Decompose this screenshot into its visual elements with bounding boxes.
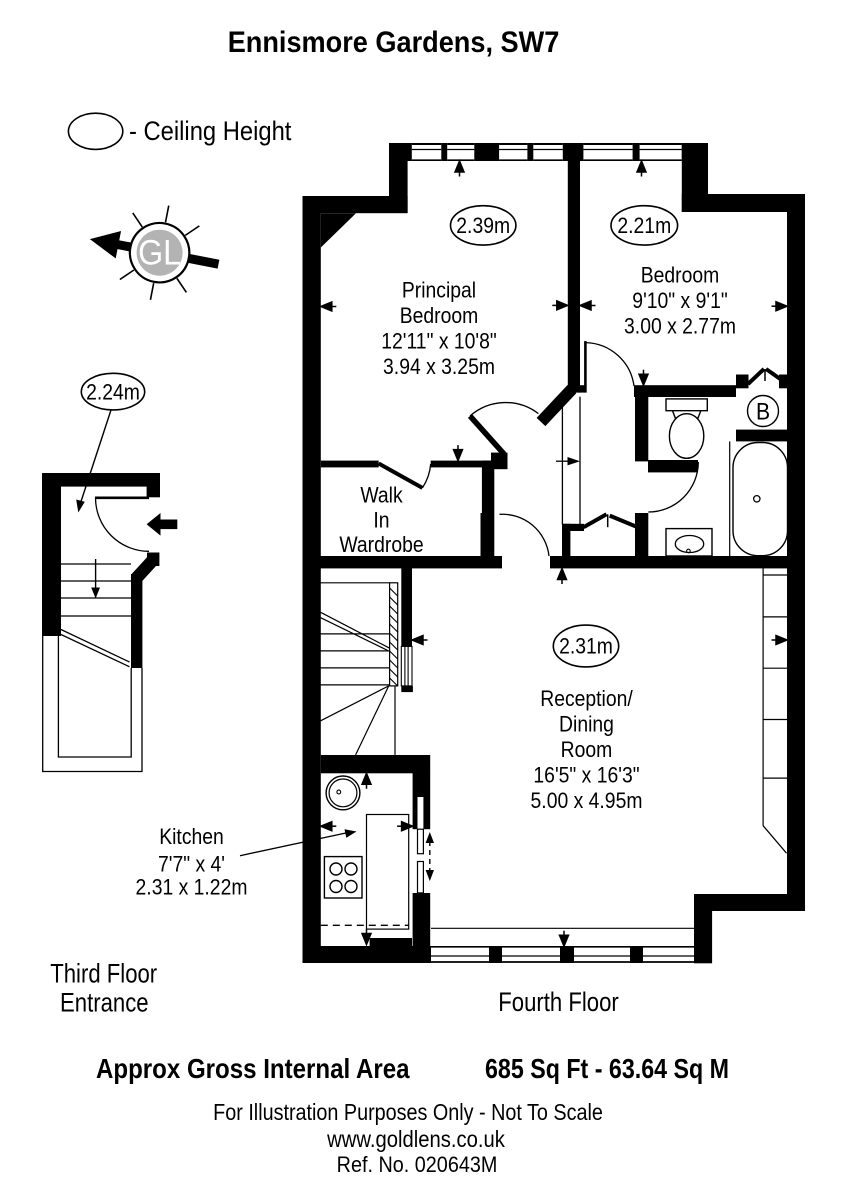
svg-text:Fourth Floor: Fourth Floor: [498, 988, 618, 1018]
svg-text:B: B: [756, 398, 770, 425]
svg-text:Third Floor: Third Floor: [50, 960, 157, 990]
svg-text:2.31 x 1.22m: 2.31 x 1.22m: [136, 875, 248, 899]
svg-text:www.goldlens.co.uk: www.goldlens.co.uk: [326, 1126, 505, 1153]
svg-text:9'10" x 9'1": 9'10" x 9'1": [632, 289, 727, 313]
svg-text:12'11" x 10'8": 12'11" x 10'8": [381, 329, 496, 353]
svg-text:Room: Room: [561, 738, 613, 762]
svg-text:Dining: Dining: [559, 712, 614, 736]
svg-text:5.00 x 4.95m: 5.00 x 4.95m: [531, 789, 643, 813]
svg-text:2.24m: 2.24m: [86, 380, 140, 404]
svg-text:For Illustration Purposes Only: For Illustration Purposes Only - Not To …: [213, 1100, 603, 1126]
svg-text:GL: GL: [138, 235, 181, 274]
svg-text:3.94 x 3.25m: 3.94 x 3.25m: [383, 355, 495, 379]
svg-text:Entrance: Entrance: [60, 989, 149, 1019]
svg-text:- Ceiling Height: - Ceiling Height: [129, 117, 291, 147]
svg-text:7'7" x 4': 7'7" x 4': [158, 852, 225, 876]
svg-text:Ref. No. 020643M: Ref. No. 020643M: [337, 1153, 498, 1177]
svg-text:2.31m: 2.31m: [559, 634, 613, 658]
svg-text:16'5" x 16'3": 16'5" x 16'3": [533, 763, 639, 787]
svg-text:3.00 x 2.77m: 3.00 x 2.77m: [624, 314, 736, 338]
svg-text:Wardrobe: Wardrobe: [339, 533, 423, 557]
svg-text:Bedroom: Bedroom: [641, 263, 720, 287]
svg-text:685 Sq Ft - 63.64 Sq M: 685 Sq Ft - 63.64 Sq M: [485, 1054, 729, 1084]
svg-text:Approx Gross Internal Area: Approx Gross Internal Area: [96, 1052, 410, 1084]
svg-text:Reception/: Reception/: [540, 687, 633, 711]
svg-text:Kitchen: Kitchen: [159, 825, 224, 849]
svg-text:In: In: [373, 508, 389, 532]
svg-text:2.21m: 2.21m: [617, 214, 671, 238]
svg-text:2.39m: 2.39m: [456, 214, 510, 238]
svg-text:Principal: Principal: [402, 278, 476, 302]
svg-text:Walk: Walk: [360, 483, 403, 507]
svg-text:Ennismore Gardens, SW7: Ennismore Gardens, SW7: [228, 26, 560, 59]
svg-text:Bedroom: Bedroom: [400, 304, 479, 328]
